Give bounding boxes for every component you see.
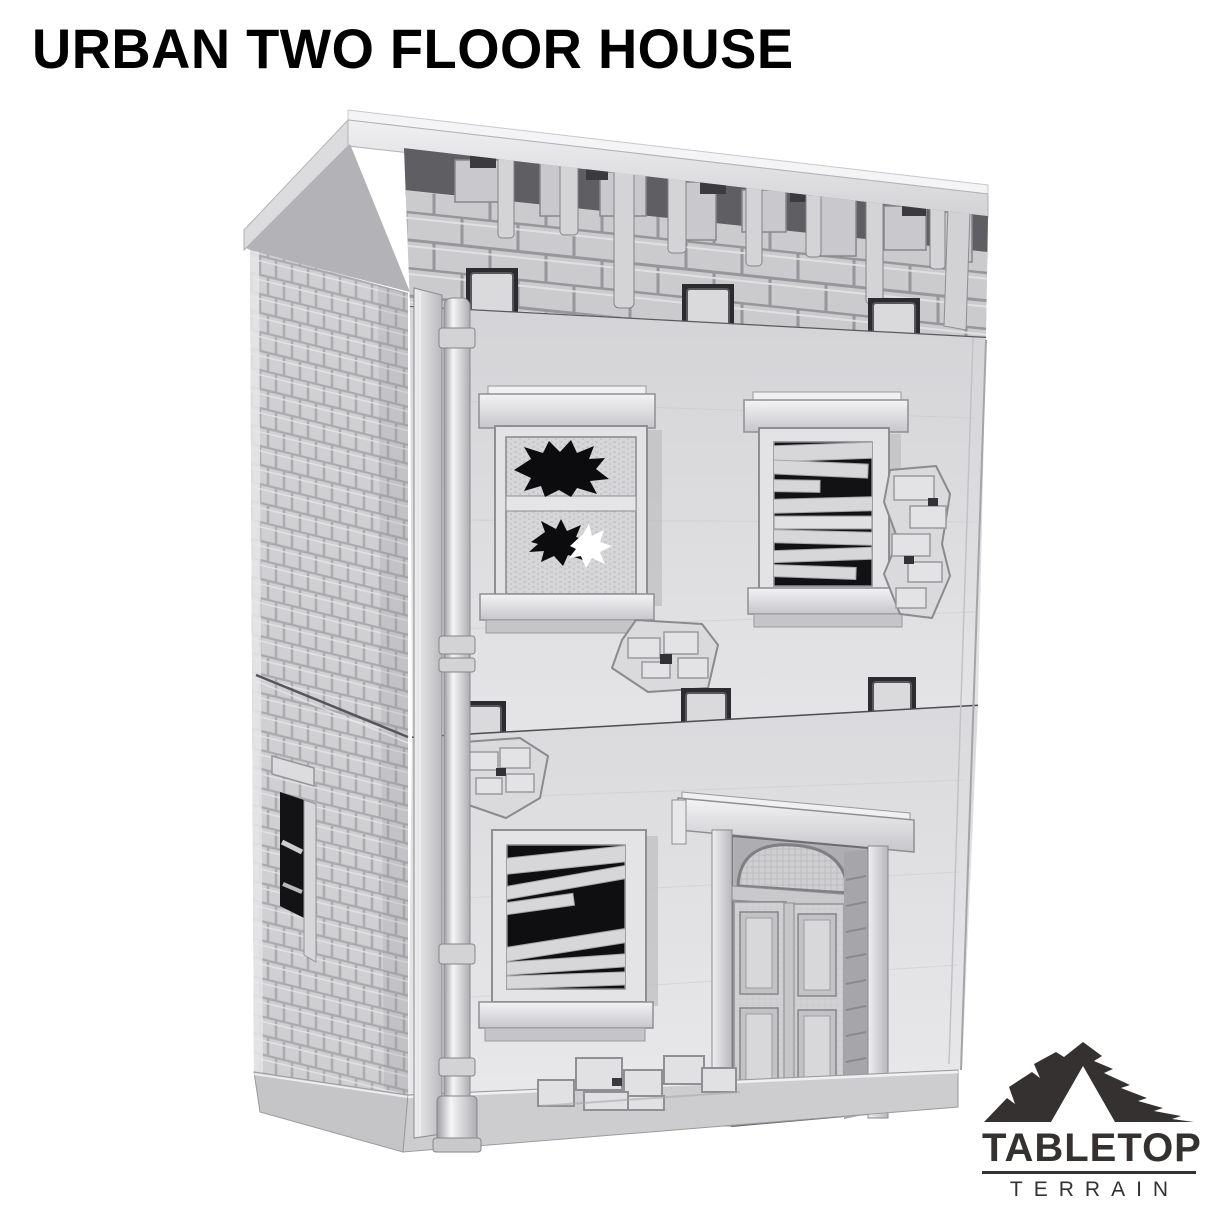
door-cornice-cap (672, 800, 686, 844)
side-wall (250, 250, 408, 1095)
door-stile (784, 903, 794, 1100)
vent-side-board (304, 800, 316, 962)
corner-pilaster (414, 288, 442, 1138)
window-midrail (506, 496, 636, 511)
mountain-icon (982, 1036, 1196, 1126)
connection-tab (873, 682, 911, 712)
window-sill (479, 1002, 653, 1028)
window-ground (479, 830, 658, 1041)
parapet-right-cap (944, 208, 970, 330)
window-sill (748, 588, 908, 614)
brand-divider (982, 1171, 1196, 1174)
window-cornice (479, 394, 655, 428)
connection-tab (471, 273, 513, 313)
vent-opening (280, 792, 304, 918)
door-leaves (734, 902, 844, 1100)
window-upper-right (744, 392, 908, 627)
damage-patch-right (884, 466, 950, 618)
pipe-foot (437, 1096, 477, 1144)
brand-name: TABLETOP (982, 1128, 1196, 1168)
product-page: URBAN TWO FLOOR HOUSE (0, 0, 1214, 1214)
brand-logo: TABLETOP TERRAIN (982, 1036, 1196, 1200)
product-photo (0, 0, 1214, 1214)
house-render (0, 0, 1214, 1214)
brand-subname: TERRAIN (982, 1179, 1196, 1200)
window-upper-left (479, 386, 662, 633)
window-sill (480, 594, 654, 620)
